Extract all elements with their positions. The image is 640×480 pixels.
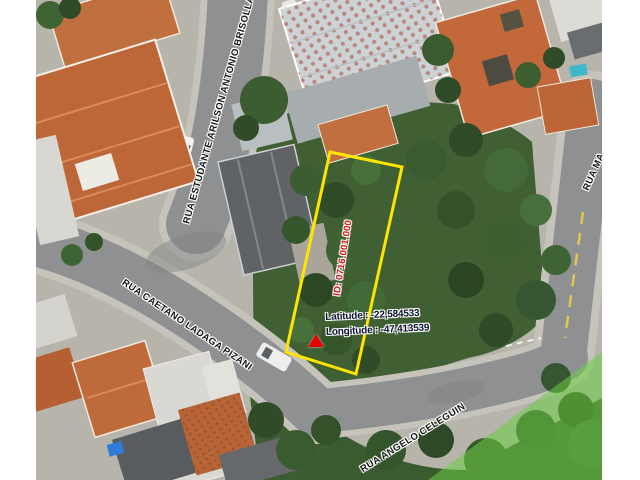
aerial-imagery xyxy=(36,0,602,480)
street-ma xyxy=(564,102,592,350)
location-marker[interactable] xyxy=(308,334,324,347)
screenshot-canvas: RUA ESTUDANTE ARILSON ANTONIO BRISOLLA R… xyxy=(0,0,640,480)
coordinates-block: Latitude : -22,584533 Longitude : -47,41… xyxy=(325,305,430,339)
aerial-map[interactable]: RUA ESTUDANTE ARILSON ANTONIO BRISOLLA R… xyxy=(36,0,602,480)
